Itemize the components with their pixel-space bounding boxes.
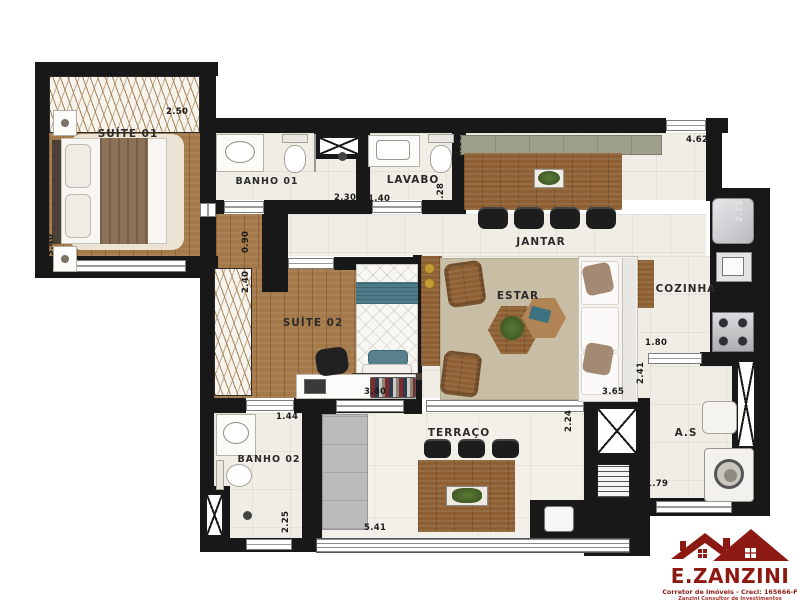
wall <box>200 398 246 413</box>
bar-stool <box>424 278 435 289</box>
washer-drum-icon <box>724 469 737 482</box>
dim-lavabo-depth: 1.28 <box>436 183 447 205</box>
shower-glass <box>314 134 316 172</box>
sink-icon <box>223 422 249 444</box>
room-label-terraco: TERRAÇO <box>428 427 490 439</box>
console-table <box>638 260 654 308</box>
dining-bench <box>460 135 662 155</box>
dim-kitchen-pass: 1.80 <box>645 338 667 349</box>
throw-pillow <box>581 261 615 296</box>
wall <box>35 62 218 76</box>
toilet-tank <box>428 134 454 143</box>
kitchen-sink-icon <box>722 257 744 276</box>
brand-logo: E.ZANZINI Corretor de Imóveis - Creci: 1… <box>662 526 798 600</box>
fridge-icon <box>712 198 754 244</box>
plant-icon <box>452 488 482 503</box>
window-suite01 <box>68 260 186 272</box>
room-label-servico: A.S <box>675 427 698 439</box>
room-label-estar: ESTAR <box>497 290 539 302</box>
sofa-backrest <box>622 258 636 400</box>
bed-blanket-teal <box>356 282 418 304</box>
dim-hall-width: 0.90 <box>241 231 252 253</box>
ventilation-shaft-icon <box>205 493 224 537</box>
toilet-icon <box>430 145 452 173</box>
terrace-sink-icon <box>544 506 574 532</box>
sliding-door-estar-terrace <box>426 400 584 412</box>
dim-terraco-depth: 2.24 <box>564 410 575 432</box>
terrace-chair <box>424 439 451 458</box>
room-label-lavabo: LAVABO <box>387 174 440 186</box>
terrace-sofa <box>322 414 368 530</box>
terrace-chair <box>458 439 485 458</box>
dim-suite01-width: 2.50 <box>166 107 188 118</box>
wall <box>302 398 322 552</box>
dim-suite02-hall: 1.44 <box>276 412 298 423</box>
dim-servico-width: 1.79 <box>646 479 668 490</box>
room-label-banho02: BANHO 02 <box>237 454 300 465</box>
door-suite02 <box>288 258 334 269</box>
door-banho01 <box>224 201 264 213</box>
room-label-jantar: JANTAR <box>516 236 565 248</box>
dim-banho02-depth: 2.25 <box>281 511 292 533</box>
vent-grate-icon <box>597 464 630 498</box>
dim-terraco-width: 5.41 <box>364 523 386 534</box>
dim-banho01-depth: 1.25 <box>206 170 217 192</box>
bed-headboard <box>52 140 61 244</box>
ventilation-shaft-icon <box>736 360 756 448</box>
armchair <box>439 350 482 398</box>
room-label-cozinha: COZINHA <box>656 283 717 295</box>
floor-plan-canvas: SUÍTE 01 BANHO 01 LAVABO JANTAR COZINHA … <box>0 0 800 600</box>
room-label-suite02: SUÍTE 02 <box>283 317 344 329</box>
toilet-icon <box>226 464 252 487</box>
window-suite02-terrace <box>336 400 404 412</box>
terrace-railing <box>316 538 630 553</box>
dim-lavabo-width: 1.40 <box>368 194 390 205</box>
room-label-banho01: BANHO 01 <box>235 176 298 187</box>
bed-blanket <box>100 138 148 244</box>
stove-icon <box>712 312 754 352</box>
brand-tagline: Corretor de Imóveis - Creci: 165666-F <box>662 589 798 595</box>
sink-icon <box>376 140 410 160</box>
toilet-icon <box>284 145 306 173</box>
dining-chair <box>586 207 616 229</box>
roof-logo-icon <box>669 526 791 562</box>
wall <box>322 398 336 414</box>
elevator-shaft-icon <box>596 407 638 455</box>
dining-chair <box>478 207 508 229</box>
pillow <box>65 194 91 238</box>
dim-cozinha-depth: 2.75 <box>735 200 746 222</box>
floor-hall <box>216 214 262 270</box>
sink-icon <box>225 141 255 163</box>
dim-jantar-depth: 4.80 <box>454 135 465 157</box>
dim-suite01-depth: 3.40 <box>46 234 57 256</box>
toilet-tank <box>282 134 308 143</box>
wall <box>262 214 288 292</box>
throw-pillow <box>582 342 615 376</box>
wall <box>200 118 666 133</box>
lamp-icon <box>61 255 69 263</box>
toilet-tank <box>216 460 224 490</box>
window-banho02 <box>246 539 292 550</box>
dim-suite02-depth: 2.40 <box>241 271 252 293</box>
door-banho02 <box>246 400 294 411</box>
dim-estar-depth: 3.65 <box>602 387 624 398</box>
dim-banho01-width: 2.30 <box>334 193 356 204</box>
room-label-suite01: SUÍTE 01 <box>98 128 159 140</box>
bar-stool <box>424 263 435 274</box>
dining-chair <box>514 207 544 229</box>
door-suite01 <box>200 203 216 217</box>
laptop-icon <box>304 379 326 394</box>
brand-name: E.ZANZINI <box>662 566 798 586</box>
laundry-tank-icon <box>702 401 737 434</box>
plant-icon <box>538 171 560 185</box>
window-kitchen <box>666 120 706 131</box>
dim-jantar-width: 4.62 <box>686 135 708 146</box>
window-servico <box>656 501 732 513</box>
terrace-chair <box>492 439 519 458</box>
shower-head-icon <box>338 152 347 161</box>
armchair <box>443 260 487 309</box>
plant-icon <box>500 316 524 340</box>
dim-suite02-width: 3.40 <box>364 387 386 398</box>
wall <box>404 398 422 414</box>
dining-chair <box>550 207 580 229</box>
shower-head-icon <box>243 511 252 520</box>
lamp-icon <box>61 119 69 127</box>
desk-chair <box>314 346 349 377</box>
dim-servico-depth: 2.41 <box>636 362 647 384</box>
sliding-door-kitchen-servico <box>648 353 702 364</box>
pillow <box>65 144 91 188</box>
